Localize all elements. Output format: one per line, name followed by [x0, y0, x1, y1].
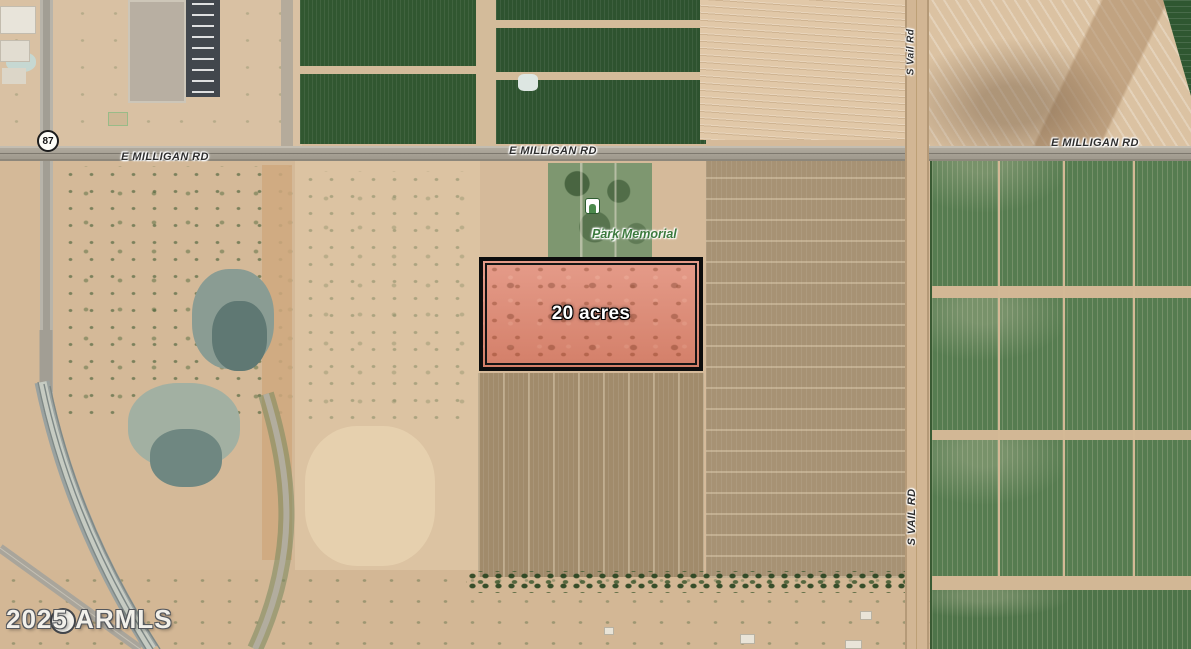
crop-field-green	[932, 146, 1191, 286]
pond	[518, 74, 538, 91]
building	[0, 40, 30, 62]
parcel-acreage-label: 20 acres	[552, 303, 630, 325]
building	[2, 68, 26, 84]
road-label-vail-upper: S Vail Rd	[906, 29, 917, 76]
building	[860, 611, 872, 620]
crop-field-green	[932, 440, 1191, 576]
desert-scrub	[300, 171, 475, 421]
plowed-field	[928, 0, 1191, 146]
plowed-field	[478, 373, 704, 577]
minor-road	[281, 0, 293, 152]
tree-line	[466, 571, 912, 593]
crop-field-green	[932, 298, 1191, 430]
industrial-barns	[186, 0, 220, 97]
farm-road	[928, 576, 1191, 590]
cemetery-icon	[585, 198, 600, 214]
building	[0, 6, 36, 34]
crop-field-green	[932, 590, 1191, 649]
plowed-field	[706, 160, 906, 578]
field-divider	[1063, 146, 1065, 576]
highway-shield-number: 87	[42, 136, 53, 147]
plowed-field	[700, 0, 908, 140]
road-label-milligan-center: E MILLIGAN RD	[509, 145, 597, 157]
road-label-milligan-right: E MILLIGAN RD	[1051, 137, 1139, 149]
park-name-line2: Park	[592, 228, 619, 242]
tombstone-glyph	[589, 204, 596, 213]
cemetery-grounds	[548, 163, 652, 257]
armls-watermark: 2025 ARMLS	[6, 604, 173, 635]
satellite-map[interactable]: 20 acres 87 E MILLIGAN RD E MILLIGAN RD …	[0, 0, 1191, 649]
vail-road	[905, 0, 929, 649]
farm-road	[476, 0, 496, 146]
building	[108, 112, 128, 126]
road-label-vail-lower: S VAIL RD	[906, 489, 918, 546]
parcel-boundary[interactable]: 20 acres	[479, 257, 703, 371]
farm-road	[932, 286, 1191, 298]
building	[604, 627, 614, 635]
highway-shield: 87	[37, 130, 59, 152]
farm-road	[932, 430, 1191, 440]
building	[740, 634, 755, 644]
field-divider	[998, 146, 1000, 576]
crop-field-green	[496, 0, 706, 144]
crop-field-green	[300, 0, 486, 144]
road-label-milligan-left: E MILLIGAN RD	[121, 151, 209, 163]
hedgerow	[930, 150, 932, 649]
field-divider	[1133, 146, 1135, 576]
building	[845, 640, 862, 649]
railroad-and-roads-graphic	[0, 330, 320, 649]
industrial-pads	[128, 0, 186, 103]
